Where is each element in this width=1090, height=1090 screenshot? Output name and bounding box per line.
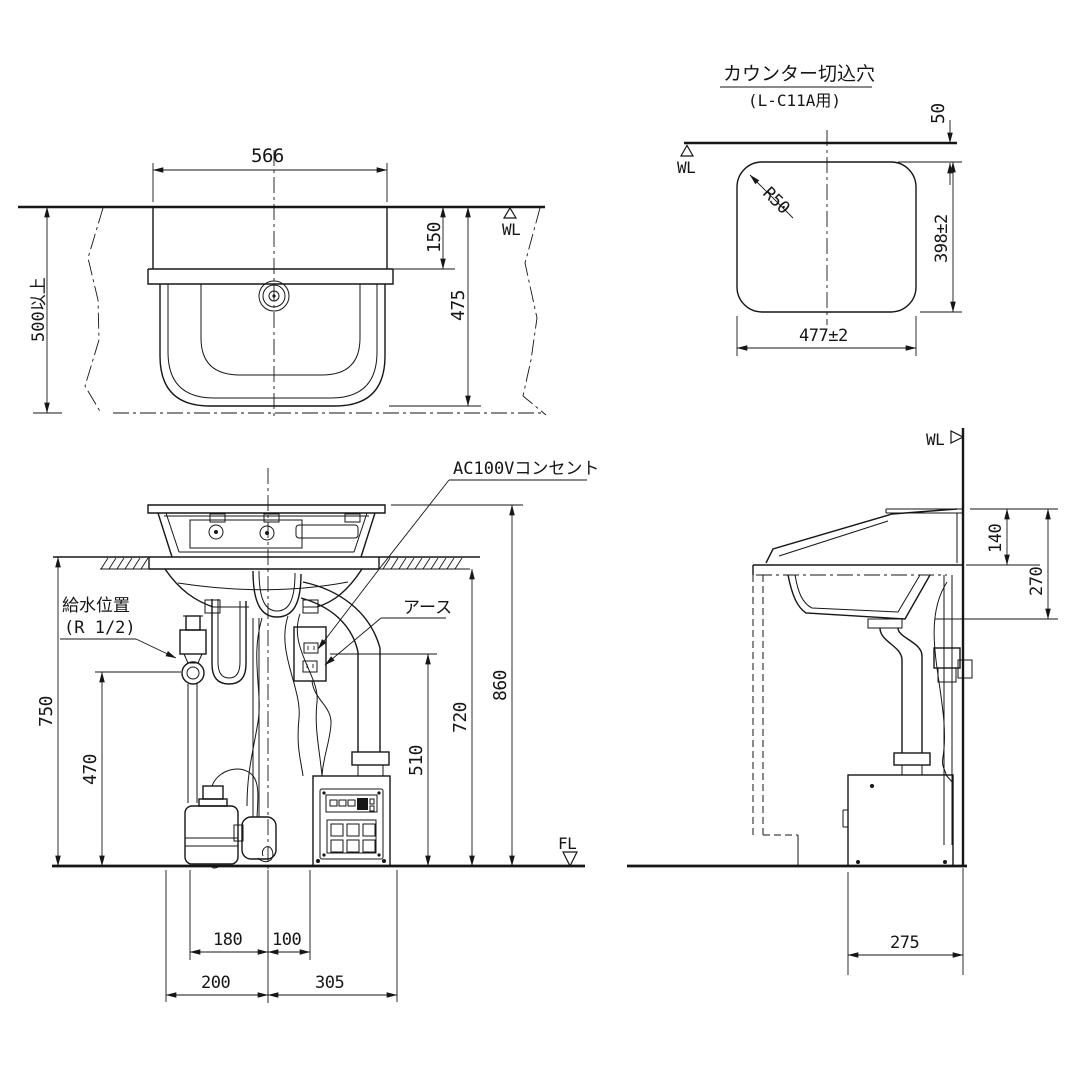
wl-marker-side: WL bbox=[926, 430, 963, 449]
sink-unit-top bbox=[148, 505, 385, 569]
unit-flange bbox=[149, 557, 379, 569]
supply-label-line2: (R 1/2) bbox=[64, 618, 136, 638]
supply-valve bbox=[180, 616, 206, 803]
dim-100-text: 100 bbox=[272, 930, 301, 950]
bottom-dims: 180 100 200 305 bbox=[166, 870, 397, 1002]
wl-triangle-icon bbox=[504, 208, 516, 218]
drain-pipe-side bbox=[880, 628, 930, 775]
break-line-right bbox=[523, 208, 546, 415]
bowl-side bbox=[788, 575, 930, 628]
outlet-lower-plug bbox=[303, 661, 317, 672]
heater-box-side bbox=[843, 775, 953, 866]
dim-50-text: 50 bbox=[928, 103, 949, 124]
outlet-callout: AC100Vコンセント bbox=[318, 459, 599, 649]
clamp-tab bbox=[210, 514, 225, 522]
outlet-label: AC100Vコンセント bbox=[453, 459, 599, 479]
dim-398-text: 398±2 bbox=[932, 214, 952, 263]
dim-150-text: 150 bbox=[424, 222, 445, 253]
dim-500-text: 500以上 bbox=[29, 277, 49, 342]
dim-477-text: 477±2 bbox=[799, 326, 848, 346]
earth-callout: アース bbox=[325, 598, 452, 665]
dim-566-text: 566 bbox=[251, 145, 284, 167]
trap-u-bend bbox=[212, 599, 246, 684]
hatch-left bbox=[101, 558, 148, 569]
earth-label: アース bbox=[403, 598, 452, 618]
fl-triangle-icon bbox=[563, 852, 577, 866]
counter-side bbox=[753, 565, 963, 575]
clamp-tab bbox=[345, 514, 360, 522]
unit-lip bbox=[148, 505, 385, 513]
dim-720-text: 720 bbox=[450, 702, 471, 733]
dim-470: 470 bbox=[80, 672, 181, 866]
dim-180-text: 180 bbox=[213, 930, 242, 950]
dim-275-text: 275 bbox=[890, 933, 919, 953]
wl-text: WL bbox=[677, 158, 695, 177]
wl-triangle-icon bbox=[681, 146, 693, 157]
dim-750-text: 750 bbox=[36, 696, 57, 727]
heater-box bbox=[313, 776, 390, 866]
pump bbox=[242, 817, 276, 859]
dim-750: 750 bbox=[36, 557, 58, 866]
counter-section bbox=[53, 557, 480, 569]
slot bbox=[296, 525, 358, 538]
clamp-tab bbox=[264, 514, 279, 522]
supply-pipe bbox=[188, 684, 197, 803]
hose-side bbox=[934, 582, 947, 775]
dim-200-text: 200 bbox=[201, 973, 230, 993]
outlet-upper-plug bbox=[304, 643, 318, 653]
fl-marker: FL bbox=[558, 834, 577, 866]
cutout-subtitle: (L-C11A用) bbox=[748, 91, 841, 110]
sink-ledge bbox=[153, 207, 387, 269]
wl-marker-plan: WL bbox=[502, 208, 520, 239]
dim-470-text: 470 bbox=[80, 754, 101, 785]
cutout-hole bbox=[737, 162, 916, 312]
drain-boss bbox=[253, 571, 301, 617]
drain-nub bbox=[868, 619, 902, 628]
dim-270-text: 270 bbox=[1027, 567, 1047, 596]
bowl-outer bbox=[160, 284, 385, 406]
indicator-strip bbox=[326, 795, 377, 812]
fl-text: FL bbox=[558, 834, 576, 853]
dim-275: 275 bbox=[848, 868, 963, 975]
radius-callout: R50 bbox=[750, 175, 793, 218]
tank-body bbox=[185, 806, 238, 864]
tank-and-pump bbox=[185, 769, 276, 868]
wl-marker-cutout: WL bbox=[677, 146, 695, 178]
dim-720: 720 bbox=[450, 569, 472, 866]
plan-view: 566 150 475 500以上 WL bbox=[18, 145, 546, 420]
cutout-view: カウンター切込穴 (L-C11A用) WL R50 50 398±2 bbox=[677, 63, 962, 356]
inner-panel bbox=[190, 520, 302, 548]
dim-398: 398±2 bbox=[920, 162, 962, 312]
dim-500-min: 500以上 bbox=[29, 207, 62, 413]
dim-150: 150 bbox=[391, 207, 455, 269]
dim-860-text: 860 bbox=[490, 670, 511, 701]
dim-305-text: 305 bbox=[315, 973, 344, 993]
dim-510-text: 510 bbox=[406, 745, 427, 776]
cabinet-legs bbox=[753, 575, 798, 866]
drawing-canvas: 566 150 475 500以上 WL カウンター切込穴 (L-C11A用) bbox=[0, 0, 1090, 1090]
hatch-right bbox=[383, 558, 462, 569]
unit-lid-side bbox=[766, 509, 963, 563]
bowl-inner bbox=[201, 284, 360, 375]
drain-pipe bbox=[301, 582, 389, 776]
technical-drawing-sheet: 566 150 475 500以上 WL カウンター切込穴 (L-C11A用) bbox=[0, 0, 1090, 1090]
dim-477: 477±2 bbox=[737, 316, 916, 356]
cutout-title: カウンター切込穴 bbox=[723, 63, 875, 85]
supply-callout: 給水位置 (R 1/2) bbox=[60, 596, 176, 658]
supply-label-line1: 給水位置 bbox=[62, 596, 130, 616]
dim-566: 566 bbox=[153, 145, 387, 202]
side-view: WL bbox=[627, 428, 1058, 975]
dim-860: 860 bbox=[391, 505, 523, 866]
dim-475-text: 475 bbox=[448, 290, 469, 321]
break-line-left bbox=[85, 208, 103, 413]
valve-side bbox=[934, 648, 960, 668]
tank-hose bbox=[212, 769, 258, 817]
wl-triangle-icon bbox=[951, 431, 963, 443]
tank-cap bbox=[203, 786, 223, 799]
dim-140-text: 140 bbox=[986, 524, 1006, 553]
wl-text: WL bbox=[926, 430, 944, 449]
dim-140: 140 bbox=[966, 509, 1058, 565]
wl-text: WL bbox=[502, 220, 520, 239]
front-view: 750 470 510 720 860 180 100 bbox=[36, 459, 599, 1003]
